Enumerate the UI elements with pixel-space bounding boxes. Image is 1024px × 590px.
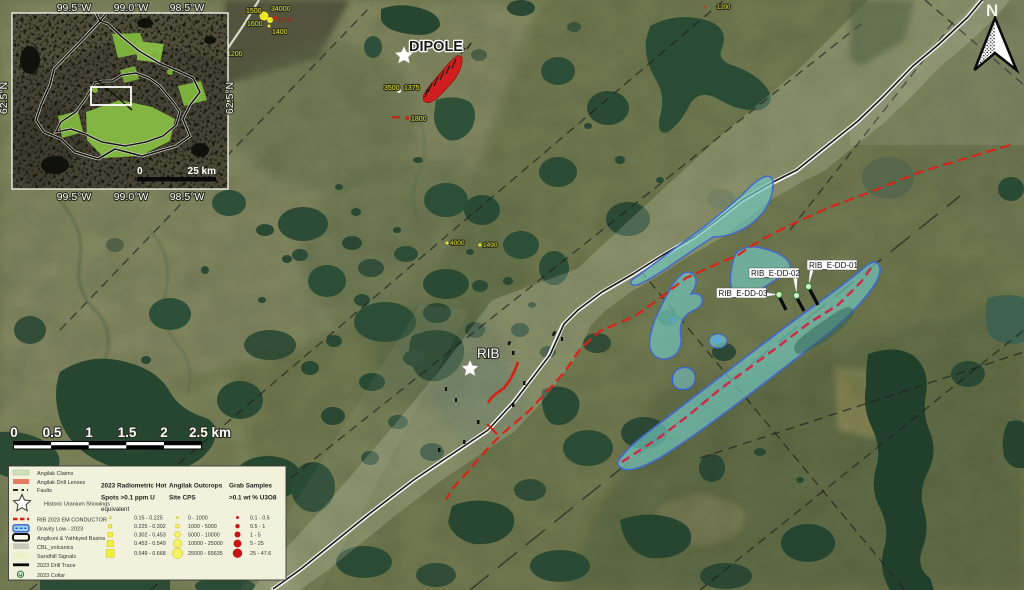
svg-text:1375: 1375 <box>404 85 420 92</box>
svg-text:1500: 1500 <box>246 8 262 15</box>
svg-text:+: + <box>703 4 707 11</box>
svg-text:0.5: 0.5 <box>43 425 62 440</box>
svg-text:RIB_E-DD-03: RIB_E-DD-03 <box>719 289 768 298</box>
svg-text:RIB_E-DD-02: RIB_E-DD-02 <box>751 269 800 278</box>
svg-text:2023 Radiometric Hot: 2023 Radiometric Hot <box>101 483 167 490</box>
svg-text:0.302 - 0.453: 0.302 - 0.453 <box>134 533 166 539</box>
svg-text:99.5°W: 99.5°W <box>57 191 92 203</box>
svg-text:99.0°W: 99.0°W <box>114 2 149 14</box>
svg-text:25 - 47.6: 25 - 47.6 <box>250 551 271 557</box>
svg-text:Angilak Claims: Angilak Claims <box>37 471 74 477</box>
svg-text:1 - 5: 1 - 5 <box>250 533 261 539</box>
svg-text:RIB_E-DD-01: RIB_E-DD-01 <box>809 261 858 270</box>
svg-text:1200: 1200 <box>227 51 243 58</box>
svg-text:Sandhill Signals: Sandhill Signals <box>37 554 76 560</box>
svg-text:5 - 25: 5 - 25 <box>250 541 264 547</box>
svg-text:Angikuni & Yathkyed Basins: Angikuni & Yathkyed Basins <box>37 536 106 542</box>
svg-text:Site CPS: Site CPS <box>169 495 196 502</box>
svg-text:2.5 km: 2.5 km <box>189 425 231 440</box>
svg-text:0: 0 <box>10 425 18 440</box>
svg-text:DIPOLE: DIPOLE <box>409 39 463 55</box>
svg-text:1490: 1490 <box>483 242 498 249</box>
svg-text:0.549 - 0.668: 0.549 - 0.668 <box>134 551 166 557</box>
svg-text:CBL_volcanics: CBL_volcanics <box>37 545 74 551</box>
svg-text:0.225 - 0.302: 0.225 - 0.302 <box>134 524 166 530</box>
svg-text:5000 - 10000: 5000 - 10000 <box>188 533 220 539</box>
svg-text:3500: 3500 <box>384 85 400 92</box>
svg-text:1600: 1600 <box>247 21 263 28</box>
svg-text:1.5: 1.5 <box>118 425 137 440</box>
svg-text:Grab Samples: Grab Samples <box>229 483 272 490</box>
svg-text:4000: 4000 <box>450 240 465 247</box>
svg-text:62.5°N: 62.5°N <box>224 82 236 114</box>
svg-text:1000 - 5000: 1000 - 5000 <box>188 524 217 530</box>
svg-text:99.0°W: 99.0°W <box>114 191 149 203</box>
svg-text:25 km: 25 km <box>188 166 216 177</box>
svg-text:98.5°W: 98.5°W <box>170 191 205 203</box>
svg-text:1400: 1400 <box>272 29 288 36</box>
svg-text:99.5°W: 99.5°W <box>57 2 92 14</box>
svg-text:1200: 1200 <box>717 5 731 11</box>
svg-text:2023 Collar: 2023 Collar <box>37 573 65 579</box>
svg-text:34000: 34000 <box>271 6 291 13</box>
svg-text:>0.1 wt % U3O8: >0.1 wt % U3O8 <box>229 495 277 502</box>
svg-text:0.1 - 0.5: 0.1 - 0.5 <box>250 516 270 522</box>
svg-text:2023 Drill Trace: 2023 Drill Trace <box>37 563 76 569</box>
svg-text:1: 1 <box>85 425 93 440</box>
svg-text:0 - 1000: 0 - 1000 <box>188 516 208 522</box>
svg-text:equivalent: equivalent <box>101 506 129 513</box>
svg-text:10000 - 25000: 10000 - 25000 <box>188 541 223 547</box>
svg-text:Spots >0.1 ppm U: Spots >0.1 ppm U <box>101 495 155 502</box>
svg-text:RIB: RIB <box>477 346 500 361</box>
svg-text:0.15 - 0.225: 0.15 - 0.225 <box>134 516 163 522</box>
svg-text:98.5°W: 98.5°W <box>170 2 205 14</box>
svg-text:Faults: Faults <box>37 488 52 494</box>
svg-text:2400: 2400 <box>277 17 292 24</box>
svg-text:0: 0 <box>137 166 143 177</box>
svg-text:2: 2 <box>160 425 168 440</box>
svg-text:RIB 2023 EM CONDUCTOR: RIB 2023 EM CONDUCTOR <box>37 517 107 523</box>
svg-text:0.5 - 1: 0.5 - 1 <box>250 524 265 530</box>
svg-text:Angilak Drill Lenses: Angilak Drill Lenses <box>37 480 86 486</box>
svg-text:62.5°N: 62.5°N <box>0 82 10 114</box>
svg-text:Gravity Low - 2023: Gravity Low - 2023 <box>37 527 83 533</box>
svg-text:N: N <box>986 1 998 20</box>
svg-text:25000 - 65635: 25000 - 65635 <box>188 551 223 557</box>
svg-text:1800: 1800 <box>411 116 427 123</box>
svg-text:Angilak Outcrops: Angilak Outcrops <box>169 483 223 490</box>
svg-text:0.453 - 0.549: 0.453 - 0.549 <box>134 541 166 547</box>
